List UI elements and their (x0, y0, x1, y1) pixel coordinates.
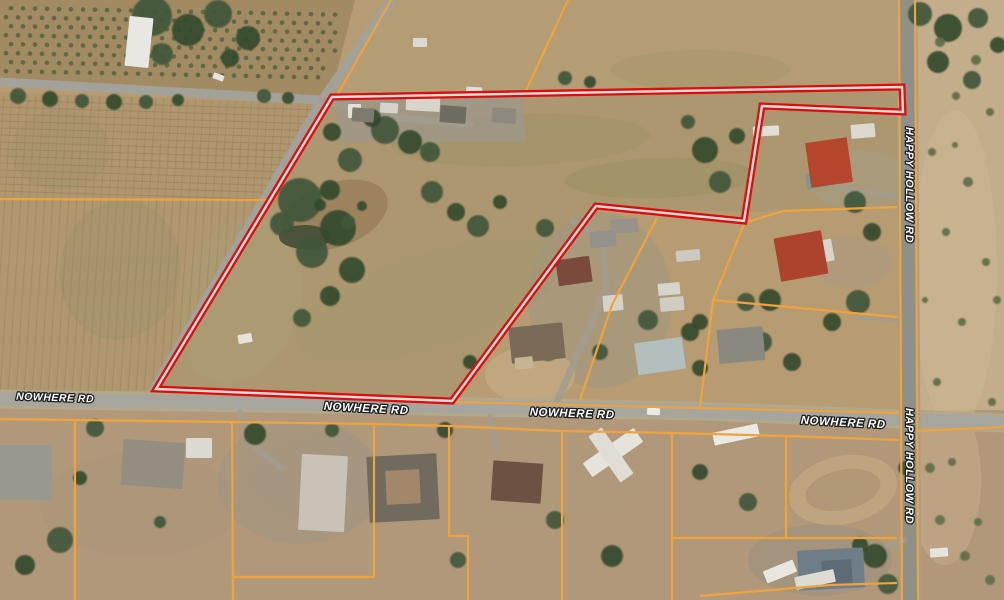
road-label: HAPPY HOLLOW RD (903, 408, 915, 524)
satellite-map[interactable]: NOWHERE RDNOWHERE RDNOWHERE RDNOWHERE RD… (0, 0, 1004, 600)
road-label: HAPPY HOLLOW RD (903, 127, 915, 243)
map-viewport[interactable]: NOWHERE RDNOWHERE RDNOWHERE RDNOWHERE RD… (0, 0, 1004, 600)
